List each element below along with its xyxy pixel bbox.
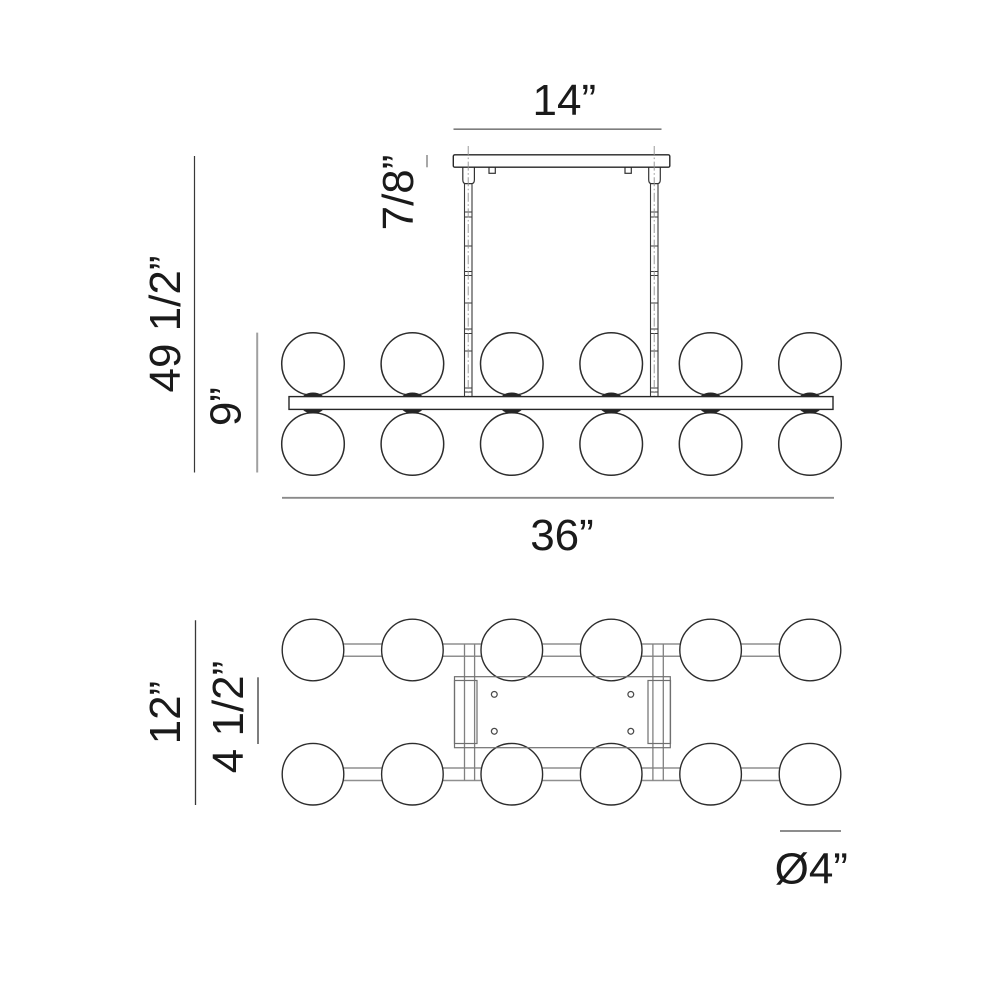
svg-text:4 1/2”: 4 1/2” — [204, 661, 253, 774]
svg-text:14”: 14” — [533, 76, 597, 125]
svg-text:49 1/2”: 49 1/2” — [141, 256, 190, 393]
svg-text:Ø4”: Ø4” — [775, 845, 848, 894]
svg-text:36”: 36” — [530, 511, 594, 560]
svg-text:9”: 9” — [201, 387, 250, 426]
svg-text:12”: 12” — [141, 681, 190, 745]
svg-text:7/8”: 7/8” — [374, 155, 423, 231]
